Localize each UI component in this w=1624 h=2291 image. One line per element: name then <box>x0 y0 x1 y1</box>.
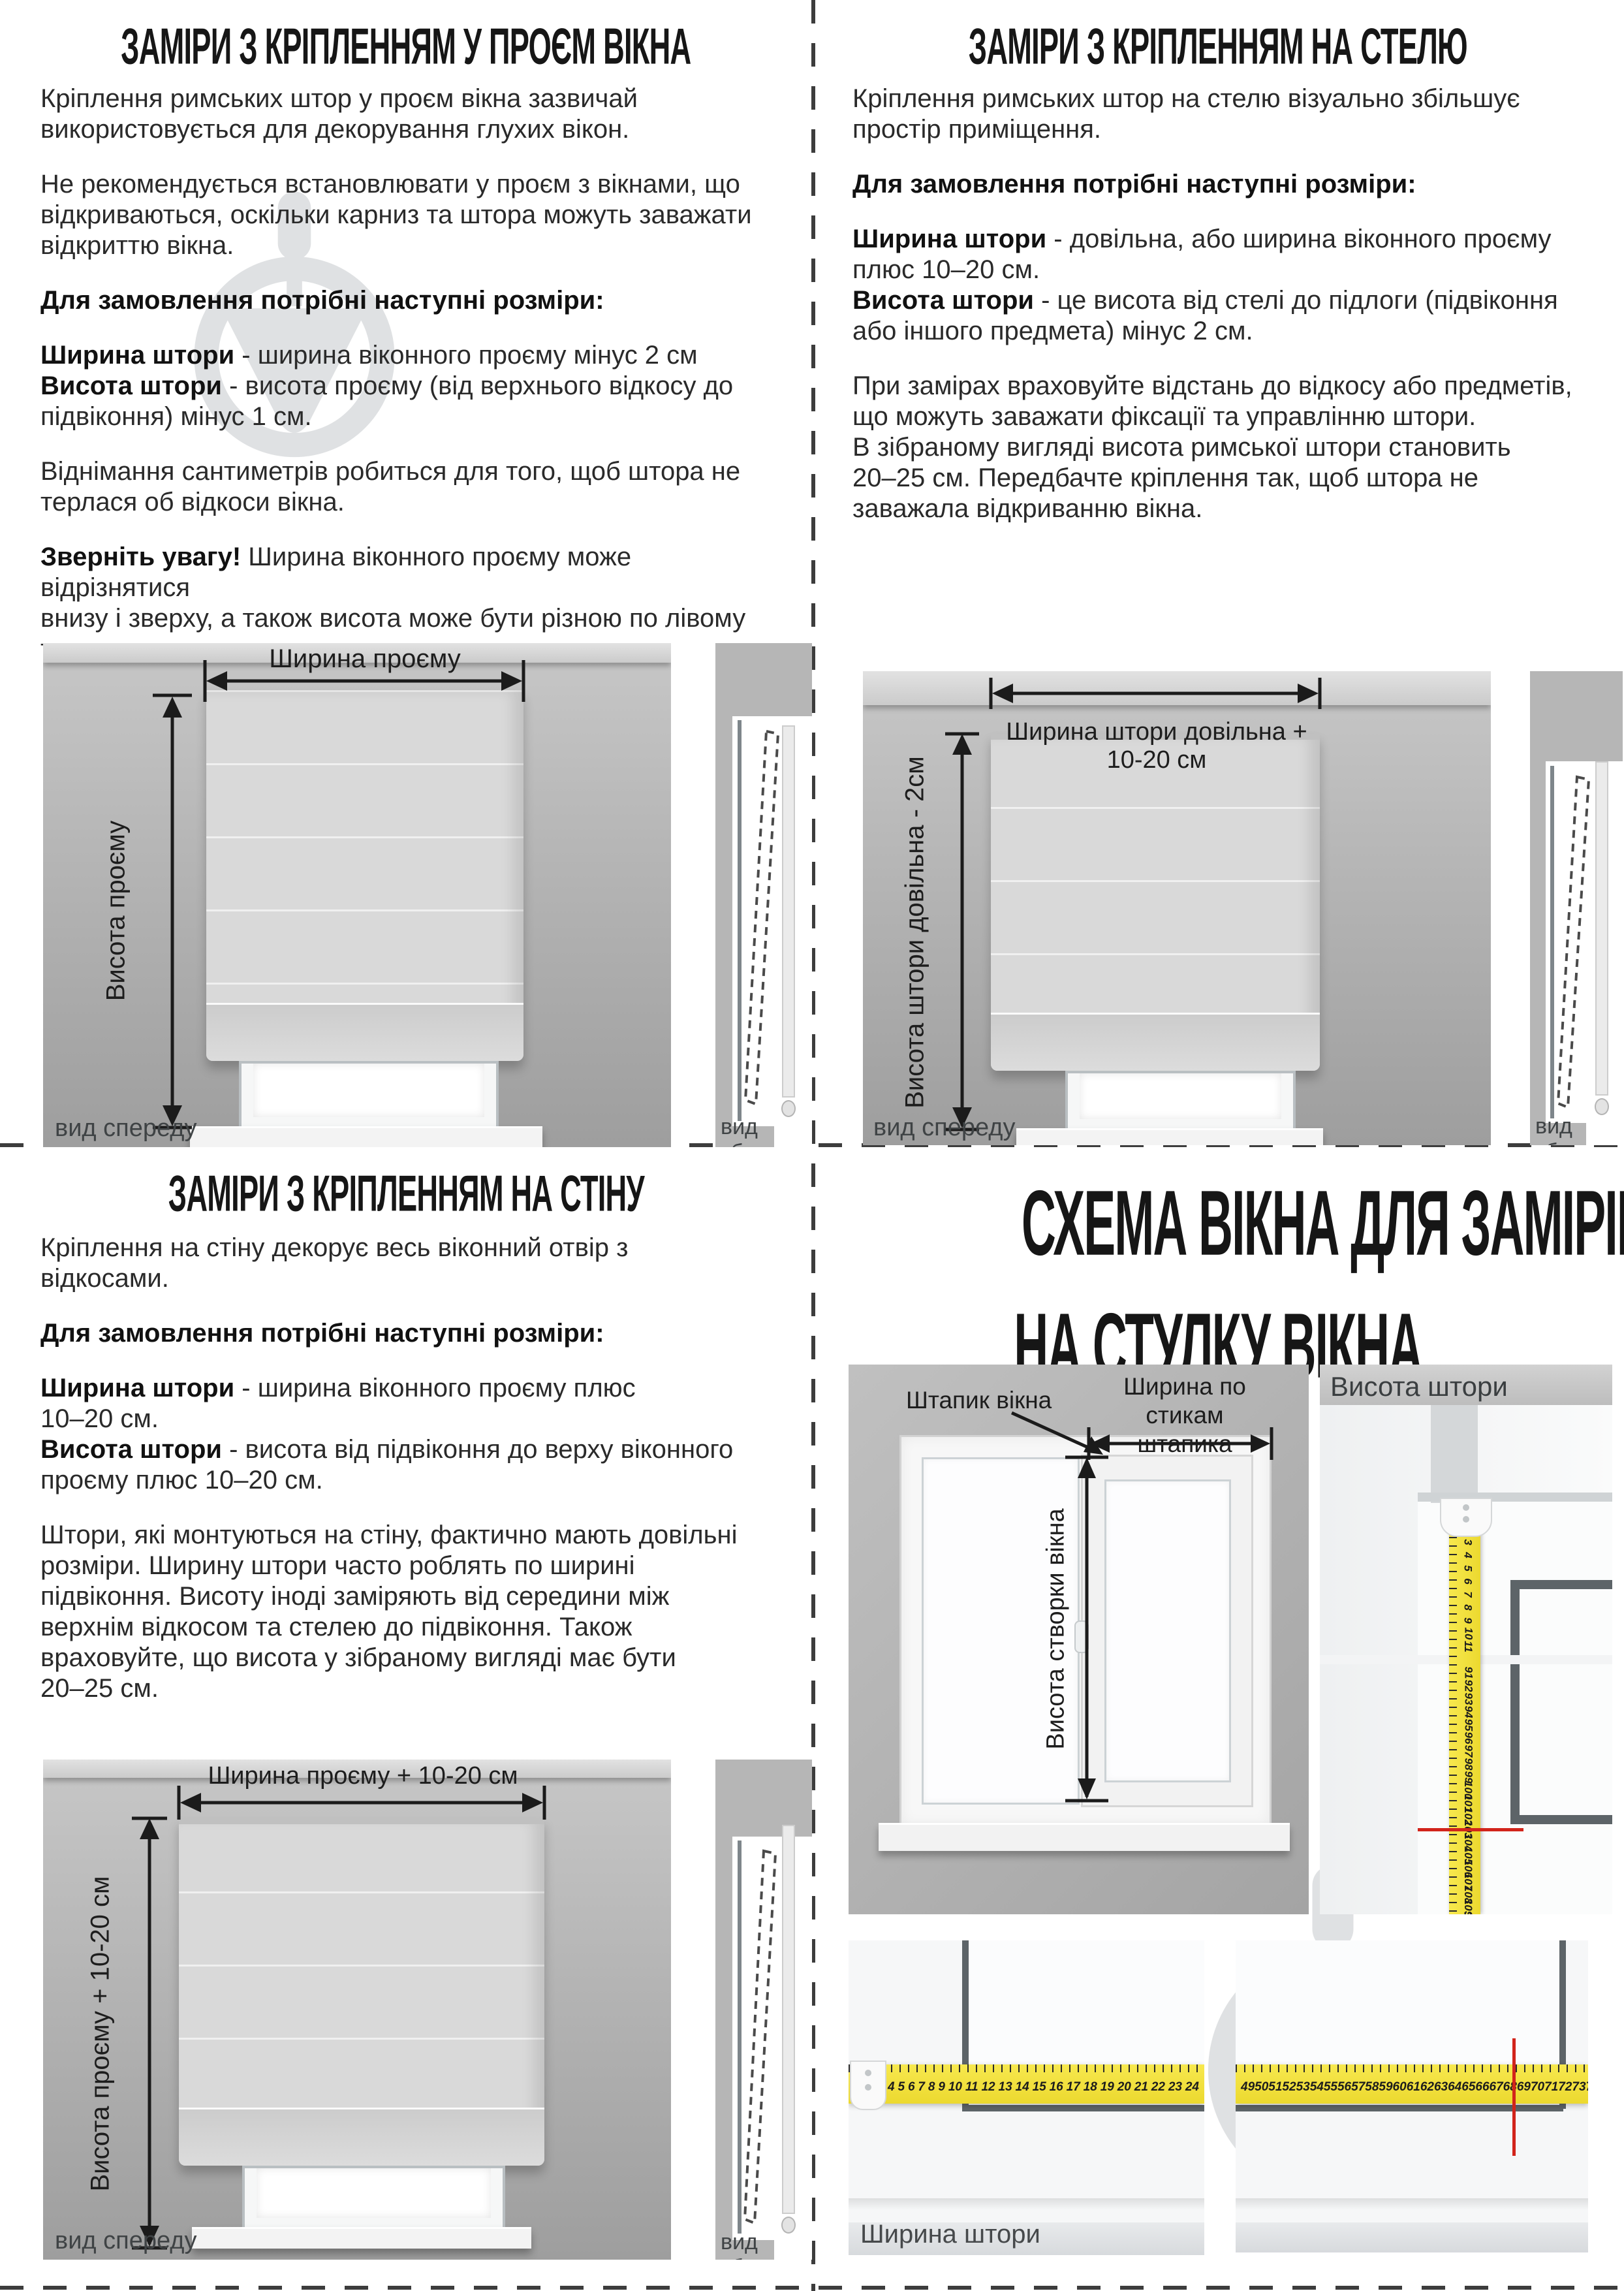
side-view-caption: вид збоку <box>721 2230 812 2260</box>
q4-window-diagram: Штапик вікна Ширина по стикам штапика Ви… <box>849 1365 1309 1914</box>
paragraph: Кріплення на стіну декорує весь віконний… <box>40 1233 785 1294</box>
front-view-caption: вид спереду <box>873 1114 1015 1142</box>
tape-numbers-top: 34567891011 <box>1456 1536 1480 1648</box>
q3-front-view-illustration: Ширина проєму + 10-20 см Висота проєму +… <box>43 1760 671 2260</box>
side-view-caption: вид збоку <box>1535 1114 1623 1145</box>
q1-title: ЗАМІРИ З КРІПЛЕННЯМ У ПРОЄМ ВІКНА <box>0 25 812 69</box>
paragraph: Не рекомендується встановлювати у проєм … <box>40 169 785 261</box>
measuring-tape-horizontal: 4950515253545556575859606162636465666768… <box>1236 2064 1588 2104</box>
shade-profile <box>782 1825 795 2214</box>
paragraph: Ширина штори - довільна, або ширина віко… <box>852 224 1597 347</box>
paragraph: Для замовлення потрібні наступні розміри… <box>40 1318 785 1349</box>
chain <box>1595 1098 1609 1115</box>
bead-label: Штапик вікна <box>906 1387 1052 1414</box>
glass-edge <box>962 2105 1204 2111</box>
tape-numbers: 456789101112131415161718192021222324 <box>882 2071 1204 2104</box>
paragraph: Штори, які монтуються на стіну, фактично… <box>40 1520 785 1704</box>
q1-side-view-illustration: вид збоку <box>715 643 812 1147</box>
height-photo-label: Висота штори <box>1330 1371 1508 1402</box>
measuring-tape-horizontal: 456789101112131415161718192021222324 <box>849 2064 1204 2104</box>
front-view-caption: вид спереду <box>55 1114 196 1143</box>
height-dimension-label: Висота проєму <box>102 821 131 1002</box>
soffit <box>1431 1405 1478 1503</box>
q4-width-photo-left: 456789101112131415161718192021222324 Шир… <box>849 1940 1204 2255</box>
shade-profile <box>782 725 795 1098</box>
paragraph: Кріплення римських штор на стелю візуаль… <box>852 84 1597 145</box>
width-photo-label: Ширина штори <box>860 2220 1040 2249</box>
paragraph: Кріплення римських штор у проєм вікна за… <box>40 84 785 145</box>
width-dimension-label: Ширина штори довільна + 10-20 см <box>993 718 1320 774</box>
q1-front-view-illustration: Ширина проєму Висота проєму вид спереду <box>43 643 671 1147</box>
bottom-divider-dashed <box>0 2286 1624 2290</box>
q3-side-view-illustration: вид збоку <box>715 1760 812 2260</box>
glass-edge-bottom <box>1510 1815 1612 1824</box>
paragraph: Віднімання сантиметрів робиться для того… <box>40 456 785 518</box>
width-dimension-label: Ширина проєму + 10-20 см <box>181 1762 544 1790</box>
q2-front-view-illustration: Ширина штори довільна + 10-20 см Висота … <box>863 671 1491 1145</box>
front-view-caption: вид спереду <box>55 2227 196 2255</box>
width-dimension-label: Ширина проєму <box>206 644 523 674</box>
paragraph: При замірах враховуйте відстань до відко… <box>852 371 1597 524</box>
sash-height-label: Висота створки вікна <box>1042 1508 1070 1749</box>
q4-height-photo: 34567891011 9192939495969798991001011021… <box>1320 1365 1612 1914</box>
tape-hook <box>1440 1498 1492 1537</box>
dimension-arrows <box>43 643 671 1147</box>
glass-edge-left <box>1510 1589 1520 1815</box>
paragraph: Ширина штори - ширина віконного проєму м… <box>40 340 785 432</box>
tape-numbers-bottom: 9192939495969798991001011021031041051061… <box>1456 1666 1480 1901</box>
q2-title: ЗАМІРИ З КРІПЛЕННЯМ НА СТЕЛЮ <box>812 25 1624 69</box>
paragraph: Для замовлення потрібні наступні розміри… <box>40 285 785 316</box>
instruction-sheet: ЗАМІРИ З КРІПЛЕННЯМ У ПРОЄМ ВІКНА Кріпле… <box>0 0 1624 2291</box>
bead-width-label: Ширина по стикам штапика <box>1090 1372 1279 1459</box>
height-dimension-label: Висота штори довільна - 2см <box>901 756 930 1109</box>
red-mark-line <box>1512 2038 1516 2156</box>
shade-profile <box>1595 761 1608 1096</box>
measuring-tape-vertical: 34567891011 9192939495969798991001011021… <box>1449 1503 1480 1914</box>
dimension-arrows <box>43 1760 671 2260</box>
q3-body: Кріплення на стіну декорує весь віконний… <box>40 1233 785 1728</box>
q2-body: Кріплення римських штор на стелю візуаль… <box>852 84 1597 548</box>
q1-body: Кріплення римських штор у проєм вікна за… <box>40 84 785 689</box>
side-view-caption: вид збоку <box>721 1114 812 1147</box>
q2-side-view-illustration: вид збоку <box>1530 671 1623 1145</box>
q4-width-photo-right: 4950515253545556575859606162636465666768… <box>1236 1940 1588 2252</box>
paragraph: Ширина штори - ширина віконного проєму п… <box>40 1373 785 1496</box>
tape-numbers: 4950515253545556575859606162636465666768… <box>1236 2071 1588 2104</box>
red-mark-line <box>1418 1828 1523 1831</box>
paragraph: Для замовлення потрібні наступні розміри… <box>852 169 1597 200</box>
glass-edge-top <box>1510 1580 1612 1589</box>
tape-hook <box>850 2061 886 2110</box>
q3-title: ЗАМІРИ З КРІПЛЕННЯМ НА СТІНУ <box>0 1172 812 1216</box>
height-dimension-label: Висота проєму + 10-20 см <box>86 1876 116 2191</box>
